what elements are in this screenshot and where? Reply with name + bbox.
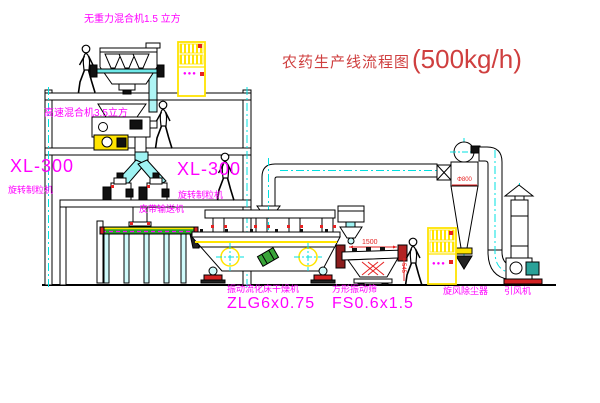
label-sieve-model: FS0.6x1.5 (332, 296, 414, 312)
cabinet-top-indicator-dots: ●●● (183, 71, 197, 77)
granulator-right (139, 173, 169, 200)
worker-figure-4 (406, 238, 423, 285)
process-flow-diagram: 农药生产线流程图 (500kg/h) 无重力混合机1.5 立方 高速混合机3.5… (0, 0, 600, 403)
title-text: 农药生产线流程图 (282, 51, 410, 75)
label-dryer-name: 振动流化床干燥机 (227, 285, 299, 294)
gravity-free-mixer (90, 43, 164, 112)
diagram-title: 农药生产线流程图 (500kg/h) (282, 44, 522, 75)
dim-sieve-height: 545 (400, 263, 406, 273)
label-granulator-left-name: 旋转制粒机 (8, 186, 53, 195)
label-granulator-left-model: XL-300 (10, 157, 74, 175)
worker-figure-2 (156, 101, 173, 148)
label-fan-name: 引风机 (504, 287, 531, 296)
control-cabinet-right (428, 228, 456, 284)
label-dryer-model: ZLG6x0.75 (227, 296, 315, 312)
label-gravity-free-mixer: 无重力混合机1.5 立方 (84, 15, 181, 25)
label-sieve-name: 方形振动筛 (332, 285, 377, 294)
label-granulator-right-name: 旋转制粒机 (178, 191, 223, 200)
control-cabinet-top (178, 42, 205, 96)
label-belt-conveyor: 皮带输送机 (139, 205, 184, 214)
label-high-speed-mixer: 高速混合机3.5立方 (44, 109, 128, 119)
dim-sieve-length: 1500 (362, 239, 378, 246)
fluid-bed-dryer (192, 210, 345, 283)
fan-and-stack (504, 183, 542, 284)
cabinet-right-indicator-dots: ●●● (432, 261, 446, 267)
label-granulator-right-model: XL-300 (177, 160, 241, 178)
label-cyclone-name: 旋风除尘器 (443, 287, 488, 296)
title-capacity: (500kg/h) (412, 44, 522, 75)
dim-cyclone-diameter: Φ800 (452, 177, 477, 183)
belt-conveyor (97, 221, 202, 283)
